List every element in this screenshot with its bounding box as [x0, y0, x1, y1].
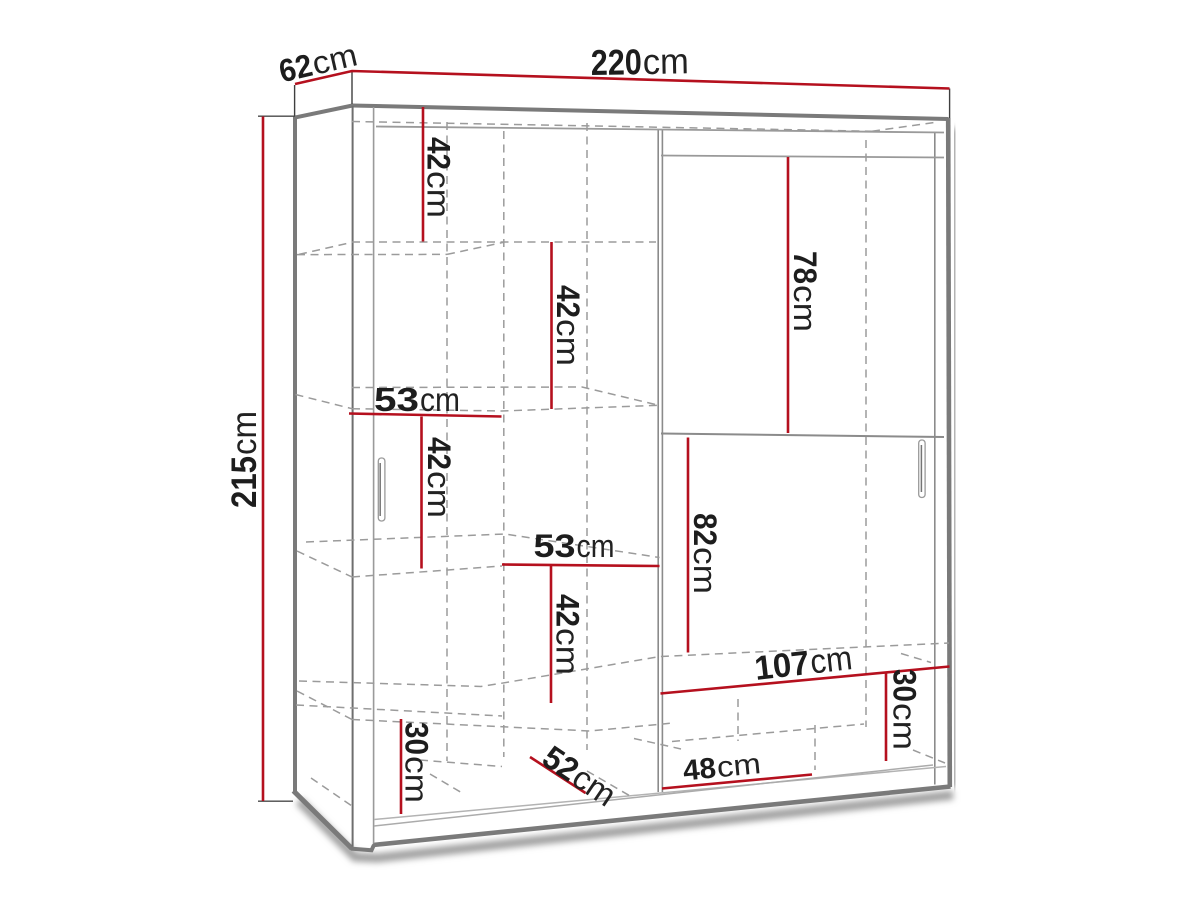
svg-text:cm: cm [399, 756, 435, 803]
svg-text:cm: cm [420, 381, 460, 418]
svg-text:cm: cm [687, 547, 723, 594]
svg-text:cm: cm [550, 628, 586, 675]
svg-text:53: 53 [534, 528, 576, 564]
svg-text:cm: cm [808, 639, 854, 682]
svg-text:cm: cm [577, 528, 615, 564]
svg-text:42: 42 [550, 285, 586, 318]
svg-text:cm: cm [787, 285, 823, 332]
svg-text:cm: cm [550, 319, 586, 366]
svg-text:107: 107 [753, 644, 812, 688]
svg-text:48: 48 [682, 752, 718, 787]
svg-text:215: 215 [225, 456, 264, 508]
svg-text:82: 82 [687, 513, 723, 546]
svg-text:cm: cm [421, 171, 457, 218]
svg-text:cm: cm [421, 471, 457, 518]
svg-text:30: 30 [399, 722, 435, 755]
svg-text:78: 78 [787, 251, 823, 284]
svg-text:42: 42 [421, 437, 457, 470]
svg-text:30: 30 [887, 669, 923, 702]
svg-text:cm: cm [715, 748, 762, 784]
svg-text:42: 42 [550, 594, 586, 627]
svg-text:cm: cm [225, 411, 264, 455]
svg-text:cm: cm [887, 703, 923, 750]
svg-text:53: 53 [374, 381, 419, 418]
svg-text:42: 42 [421, 137, 457, 170]
svg-text:220: 220 [590, 41, 642, 83]
svg-text:cm: cm [642, 40, 689, 82]
